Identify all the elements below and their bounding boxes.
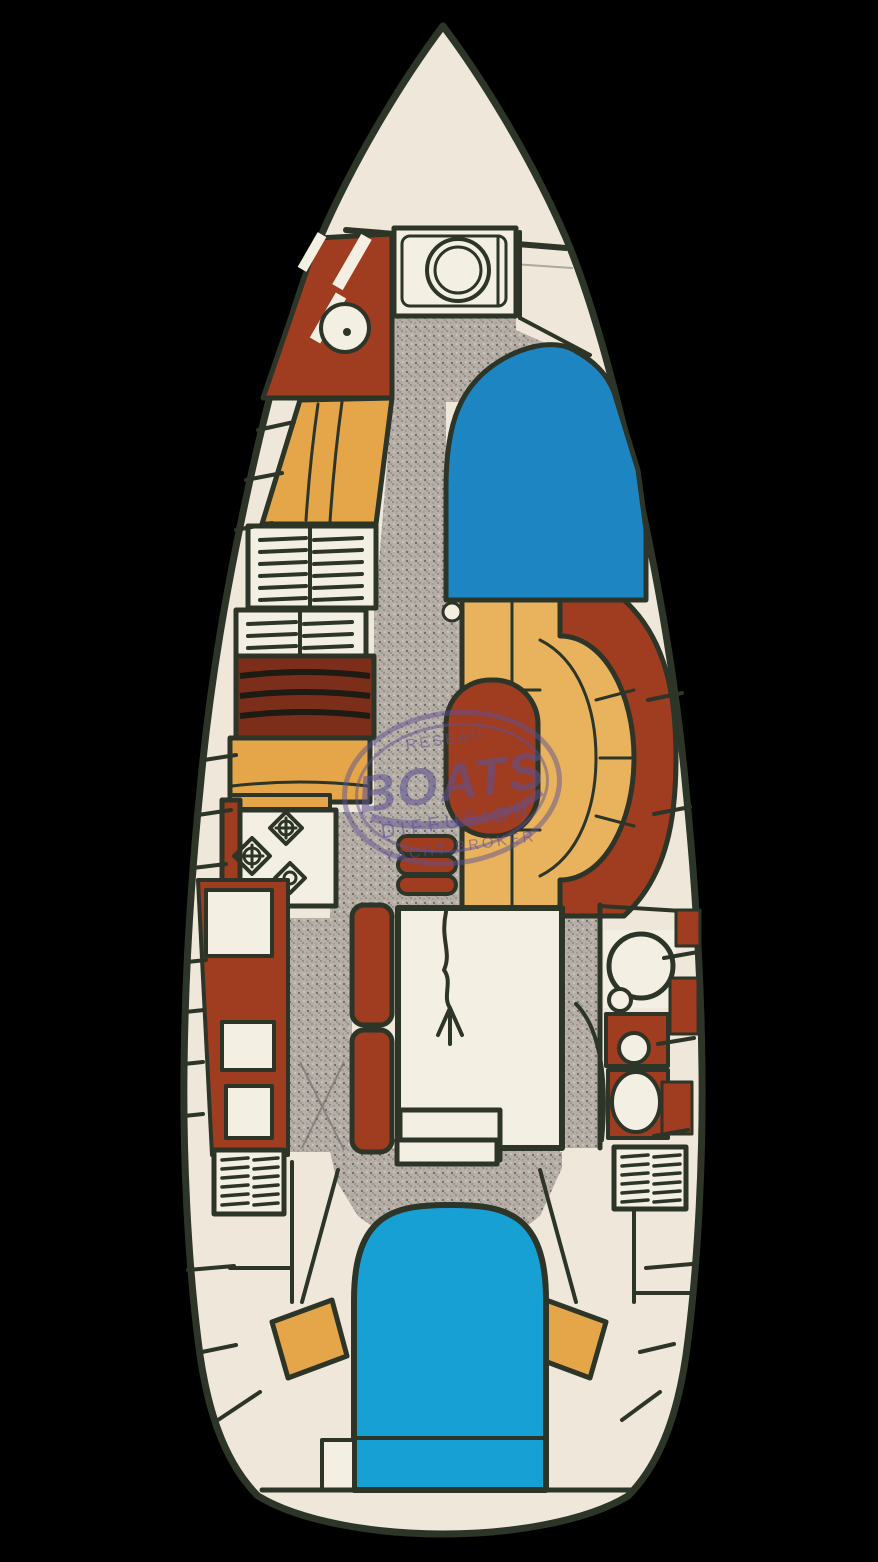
- aft-berth-step: [322, 1440, 354, 1490]
- engine-side-cabinet: [352, 1030, 392, 1152]
- galley-passage-floor: [288, 918, 352, 1152]
- boat-plan-canvas: RESEAU BOATS DIFFUSION YACHT BROKER: [0, 0, 878, 1562]
- hull-locker-red: [662, 1082, 692, 1134]
- aft-step: [397, 1140, 497, 1164]
- aft-toilet-bowl: [612, 1072, 660, 1132]
- galley-locker-door: [226, 1086, 272, 1138]
- mast-foot: [443, 603, 461, 621]
- engine-side-cabinet: [352, 905, 392, 1025]
- forward-sink-drain: [343, 328, 351, 336]
- yacht-deck-plan: RESEAU BOATS DIFFUSION YACHT BROKER: [0, 0, 878, 1562]
- hull-locker-red: [676, 910, 700, 946]
- galley-locker-door: [222, 1022, 274, 1070]
- galley-sink: [206, 890, 272, 956]
- cushion-ledge: [230, 795, 330, 809]
- companionway-engine: [352, 905, 562, 1160]
- aft-berth: [354, 1205, 546, 1490]
- hull-locker-red: [670, 978, 698, 1034]
- aft-toilet-tank: [619, 1033, 649, 1063]
- forward-sink: [321, 304, 369, 352]
- aft-basin-tap: [609, 989, 631, 1011]
